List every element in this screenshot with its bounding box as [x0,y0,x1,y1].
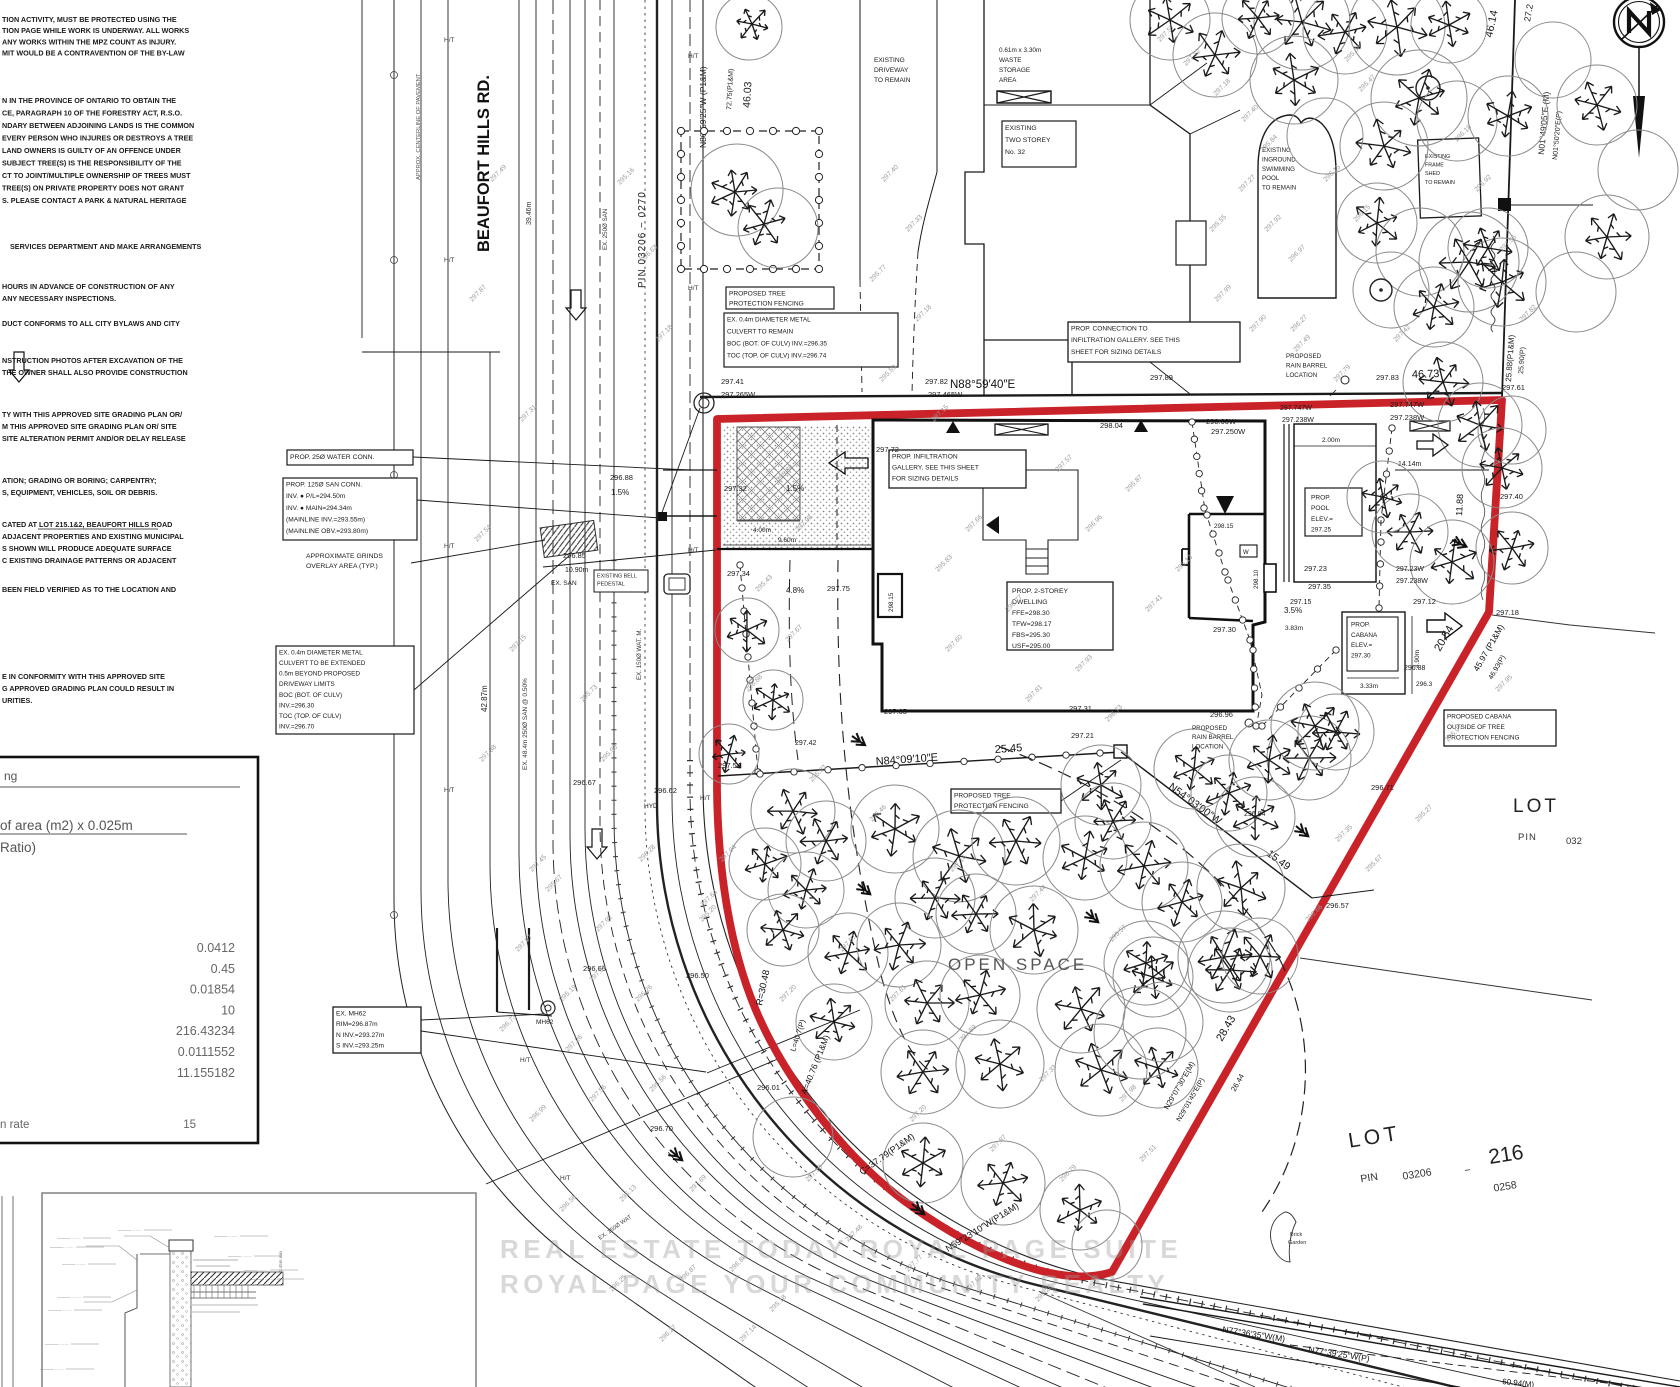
svg-text:APPROX. CENTERLINE OF PAVEMENT: APPROX. CENTERLINE OF PAVEMENT [416,73,422,180]
svg-text:C EXISTING DRAINAGE PATTERNS O: C EXISTING DRAINAGE PATTERNS OR ADJACENT [2,556,177,565]
svg-text:ANY NECESSARY INSPECTIONS.: ANY NECESSARY INSPECTIONS. [2,294,116,303]
svg-text:N INV.=293.27m: N INV.=293.27m [336,1032,385,1039]
svg-text:25.45: 25.45 [994,742,1022,756]
svg-text:EXISTING BELL: EXISTING BELL [597,574,637,580]
svg-text:CABANA: CABANA [1351,632,1378,639]
svg-text:3.5%: 3.5% [1284,606,1302,615]
svg-text:MIT WOULD BE A CONTRAVENTION O: MIT WOULD BE A CONTRAVENTION OF THE BY-L… [2,49,185,58]
svg-text:Brick: Brick [1290,1232,1302,1238]
svg-text:BEEN FIELD VERIFIED AS TO THE: BEEN FIELD VERIFIED AS TO THE LOCATION A… [2,585,176,594]
svg-text:EXISTING: EXISTING [874,57,905,64]
svg-text:PROP.: PROP. [1311,495,1331,502]
svg-text:TOC (TOP. OF CULV): TOC (TOP. OF CULV) [279,713,341,720]
svg-text:RAIN BARREL: RAIN BARREL [1192,734,1234,741]
svg-text:URITIES.: URITIES. [2,696,32,705]
svg-text:N80°59′25″W (P1&M): N80°59′25″W (P1&M) [698,66,708,148]
svg-text:296.85: 296.85 [563,551,586,560]
svg-text:H/T: H/T [560,1175,571,1182]
svg-text:296.01: 296.01 [757,1083,780,1092]
svg-text:H/T: H/T [444,543,455,550]
svg-text:ng: ng [4,769,17,783]
svg-text:297.75: 297.75 [827,584,850,593]
svg-text:297.82: 297.82 [925,377,948,386]
svg-text:PROP. CONNECTION TO: PROP. CONNECTION TO [1071,326,1148,333]
svg-text:EVERY PERSON WHO INJURES OR DE: EVERY PERSON WHO INJURES OR DESTROYS A T… [2,134,193,143]
svg-text:297.25: 297.25 [1311,526,1332,533]
svg-text:FRAME: FRAME [1425,163,1444,169]
svg-text:297.747W: 297.747W [1390,400,1425,409]
svg-text:297.12: 297.12 [1413,597,1436,606]
svg-text:298.04: 298.04 [1100,421,1123,430]
svg-text:DRIVEWAY: DRIVEWAY [874,67,909,74]
svg-text:1.5%: 1.5% [611,488,629,497]
svg-text:LOT: LOT [1513,796,1559,817]
svg-text:BOC (BOT. OF CULV): BOC (BOT. OF CULV) [279,692,342,699]
svg-text:APPROXIMATE GRINDS: APPROXIMATE GRINDS [306,553,383,560]
svg-text:PROP. INFILTRATION: PROP. INFILTRATION [892,454,958,461]
svg-text:296.96: 296.96 [1210,710,1233,719]
svg-text:——— ······: ——— ······ [50,1245,74,1250]
svg-text:297.83: 297.83 [1376,373,1399,382]
svg-text:3.83m: 3.83m [1285,625,1303,632]
svg-text:3.33m: 3.33m [1360,683,1378,690]
svg-text:INGROUND: INGROUND [1262,156,1296,163]
svg-text:——— ······: ——— ······ [40,1367,64,1372]
svg-text:SUBJECT TREE(S) IS THE RESPONS: SUBJECT TREE(S) IS THE RESPONSIBILITY OF… [2,159,182,168]
svg-text:S, EQUIPMENT, VEHICLES, SOIL O: S, EQUIPMENT, VEHICLES, SOIL OR DEBRIS. [2,488,157,497]
svg-text:INV. ● P/L=294.50m: INV. ● P/L=294.50m [286,493,346,500]
svg-text:OPEN SPACE: OPEN SPACE [948,955,1087,974]
svg-text:297.250W: 297.250W [1211,427,1246,436]
svg-text:0.01854: 0.01854 [190,983,235,997]
svg-text:FBS=295.30: FBS=295.30 [1012,632,1050,639]
svg-text:298.10: 298.10 [1253,569,1260,589]
svg-text:PROPOSED CABANA: PROPOSED CABANA [1447,713,1512,720]
svg-text:297.54: 297.54 [718,761,741,770]
svg-text:PEDESTAL: PEDESTAL [597,582,625,588]
svg-text:AREA: AREA [999,77,1017,84]
svg-text:H/T: H/T [444,257,455,264]
svg-text:297.238W: 297.238W [1390,413,1425,422]
svg-text:297.15: 297.15 [1290,599,1312,606]
svg-text:296.3: 296.3 [1416,681,1433,688]
svg-text:CE, PARAGRAPH 10 OF THE FOREST: CE, PARAGRAPH 10 OF THE FORESTRY ACT, R.… [2,109,182,118]
svg-text:296.62: 296.62 [654,786,677,795]
svg-text:TION PAGE WHILE WORK IS UNDERW: TION PAGE WHILE WORK IS UNDERWAY. ALL WO… [2,26,189,35]
svg-text:297.238W: 297.238W [1282,417,1314,424]
svg-text:——— ······: ——— ······ [244,1268,268,1273]
svg-text:39.46m: 39.46m [526,201,533,225]
svg-text:CULVERT TO REMAIN: CULVERT TO REMAIN [727,328,794,335]
svg-text:S INV.=293.25m: S INV.=293.25m [336,1042,384,1049]
svg-text:(MAINLINE INV.=293.55m): (MAINLINE INV.=293.55m) [286,516,365,523]
svg-text:LOCATION: LOCATION [1286,372,1317,379]
svg-text:296.71: 296.71 [1371,783,1394,792]
svg-text:ANY WORKS WITHIN THE MPZ COUNT: ANY WORKS WITHIN THE MPZ COUNT AS INJURY… [2,37,176,46]
svg-text:EX. MH62: EX. MH62 [336,1011,366,1018]
svg-text:297.21: 297.21 [1071,731,1094,740]
svg-text:——— ······: ——— ······ [45,1342,69,1347]
svg-text:298.15: 298.15 [1214,523,1234,530]
svg-text:PROP. 125Ø SAN CONN.: PROP. 125Ø SAN CONN. [286,482,362,489]
svg-text:15: 15 [183,1119,196,1131]
svg-text:PIN: PIN [1518,832,1537,843]
svg-text:of area (m2) x 0.025m: of area (m2) x 0.025m [0,818,133,833]
svg-text:THE OWNER SHALL ALSO PROVIDE C: THE OWNER SHALL ALSO PROVIDE CONSTRUCTIO… [2,368,188,377]
svg-text:297.238W: 297.238W [1396,578,1428,585]
svg-text:TO REMAIN: TO REMAIN [1425,180,1455,186]
svg-text:297.34: 297.34 [727,569,750,578]
svg-text:(MAINLINE OBV.=293.80m): (MAINLINE OBV.=293.80m) [286,528,368,535]
svg-text:STORAGE: STORAGE [999,67,1030,74]
svg-text:296.57: 296.57 [1326,901,1349,910]
svg-text:LAND OWNERS IS GUILTY OF AN OF: LAND OWNERS IS GUILTY OF AN OFFENCE UNDE… [2,146,182,155]
svg-text:297.40: 297.40 [1500,492,1523,501]
svg-text:297.65: 297.65 [884,707,907,716]
svg-text:297.41: 297.41 [721,377,744,386]
svg-text:297.61: 297.61 [1502,383,1525,392]
svg-text:OVERLAY AREA (TYP.): OVERLAY AREA (TYP.) [306,563,378,570]
svg-text:DRIVEWAY LIMITS: DRIVEWAY LIMITS [279,681,335,688]
svg-text:0.0412: 0.0412 [197,941,235,955]
svg-text:296.84: 296.84 [1244,811,1266,818]
svg-text:Ratio): Ratio) [0,840,36,855]
svg-text:H/T: H/T [688,53,699,60]
svg-text:——— ······: ——— ······ [214,1234,238,1239]
svg-text:297.42: 297.42 [795,740,817,747]
svg-text:298.15: 298.15 [888,592,895,612]
svg-text:SITE ALTERATION PERMIT AND/OR: SITE ALTERATION PERMIT AND/OR DELAY RELE… [2,434,186,443]
svg-text:RAIN BARREL: RAIN BARREL [1286,362,1328,369]
svg-text:H/T: H/T [444,787,455,794]
svg-text:296.70: 296.70 [650,1124,673,1133]
svg-text:216.43234: 216.43234 [176,1024,235,1038]
svg-text:M THIS APPROVED SITE GRADING P: M THIS APPROVED SITE GRADING PLAN OR/ SI… [2,422,177,431]
svg-text:S SHOWN WILL PRODUCE ADEQUATE: S SHOWN WILL PRODUCE ADEQUATE SURFACE [2,544,172,553]
svg-text:ADJACENT PROPERTIES AND EXISTI: ADJACENT PROPERTIES AND EXISTING MUNICIP… [2,532,184,541]
svg-text:297.23: 297.23 [1304,564,1327,573]
svg-text:SHEET FOR SIZING DETAILS: SHEET FOR SIZING DETAILS [1071,349,1162,356]
svg-text:——— ······: ——— ······ [62,1262,86,1267]
svg-text:ELEV.=: ELEV.= [1311,516,1333,523]
svg-text:297.89: 297.89 [1150,373,1173,382]
svg-text:297.747W: 297.747W [1280,405,1312,412]
svg-text:RIM=296.87m: RIM=296.87m [336,1021,378,1028]
svg-text:ROYAL PAGE YOUR COMMUNITY REAL: ROYAL PAGE YOUR COMMUNITY REALTY [500,1269,1169,1299]
svg-text:H/T: H/T [688,285,699,292]
svg-text:S. PLEASE CONTACT A PARK & NAT: S. PLEASE CONTACT A PARK & NATURAL HERIT… [2,196,187,205]
svg-text:46.73: 46.73 [1412,368,1440,381]
svg-text:297.30: 297.30 [1213,625,1236,634]
svg-text:296.50: 296.50 [686,971,709,980]
svg-text:297.31: 297.31 [1069,704,1092,713]
svg-text:G APPROVED GRADING PLAN COULD: G APPROVED GRADING PLAN COULD RESULT IN [2,684,174,693]
svg-text:INV. ● MAIN=294.34m: INV. ● MAIN=294.34m [286,505,352,512]
svg-text:11.88: 11.88 [1454,494,1465,516]
svg-text:CULVERT TO BE EXTENDED: CULVERT TO BE EXTENDED [279,660,366,667]
svg-text:EX. 150Ø WAT. M.: EX. 150Ø WAT. M. [636,628,643,680]
svg-text:USF=295.00: USF=295.00 [1012,643,1051,650]
svg-text:PROP. 2-STOREY: PROP. 2-STOREY [1012,588,1068,595]
svg-text:n rate: n rate [0,1119,29,1131]
svg-text:42.87m: 42.87m [480,685,489,712]
svg-text:CATED AT LOT 215.1&2, BEAUFORT: CATED AT LOT 215.1&2, BEAUFORT HILLS ROA… [2,520,172,529]
svg-text:TWO STOREY: TWO STOREY [1005,137,1051,144]
svg-text:032: 032 [1566,836,1582,847]
svg-text:PROP. 25Ø WATER CONN.: PROP. 25Ø WATER CONN. [290,454,375,461]
svg-text:0.61m x 3.30m: 0.61m x 3.30m [999,47,1041,54]
svg-text:PROPOSED TREE: PROPOSED TREE [729,291,786,298]
svg-text:H/T: H/T [700,795,711,802]
svg-text:296.88: 296.88 [1404,665,1426,672]
svg-text:0.5m BEYOND PROPOSED: 0.5m BEYOND PROPOSED [279,671,360,678]
svg-text:4.00m: 4.00m [753,527,771,534]
svg-text:10.90m: 10.90m [565,567,589,574]
svg-text:——— ······: ——— ······ [57,1295,81,1300]
svg-text:ELEV.=: ELEV.= [1351,642,1373,649]
svg-text:TO REMAIN: TO REMAIN [874,77,911,84]
svg-text:297.465W: 297.465W [928,390,963,399]
svg-text:PIN 03206 − 0270: PIN 03206 − 0270 [637,191,648,288]
svg-text:H/T: H/T [520,1057,531,1064]
svg-text:PROTECTION FENCING: PROTECTION FENCING [729,301,804,308]
svg-text:CT TO JOINT/MULTIPLE OWNERSHIP: CT TO JOINT/MULTIPLE OWNERSHIP OF TREES … [2,171,191,180]
svg-text:296.88: 296.88 [610,473,633,482]
svg-text:——— ······: ——— ······ [228,1254,252,1259]
svg-text:TFW=298.17: TFW=298.17 [1012,621,1052,628]
svg-text:2.00m: 2.00m [1322,437,1340,444]
svg-text:TOC (TOP. OF CULV) INV.=296.74: TOC (TOP. OF CULV) INV.=296.74 [727,352,827,359]
svg-text:TREE(S) ON PRIVATE PROPERTY DO: TREE(S) ON PRIVATE PROPERTY DOES NOT GRA… [2,184,185,193]
svg-text:H/T: H/T [444,37,455,44]
svg-text:0.45m min: 0.45m min [278,1250,283,1272]
svg-text:——— ······: ——— ······ [57,1236,81,1241]
svg-text:TO REMAIN: TO REMAIN [1262,185,1296,192]
svg-text:TY WITH THIS APPROVED SITE GRA: TY WITH THIS APPROVED SITE GRADING PLAN … [2,410,182,419]
svg-text:BOC (BOT. OF CULV) INV.=296.35: BOC (BOT. OF CULV) INV.=296.35 [727,340,827,347]
svg-text:E IN CONFORMITY WITH THIS APPR: E IN CONFORMITY WITH THIS APPROVED SITE [2,672,165,681]
svg-text:W: W [1243,550,1249,556]
svg-text:NSTRUCTION PHOTOS AFTER EXCAVA: NSTRUCTION PHOTOS AFTER EXCAVATION OF TH… [2,356,183,365]
svg-text:POOL: POOL [1262,175,1280,182]
svg-text:N IN THE PROVINCE OF ONTARIO T: N IN THE PROVINCE OF ONTARIO TO OBTAIN T… [2,96,176,105]
svg-text:POOL: POOL [1311,505,1330,512]
svg-text:MH62: MH62 [536,1019,554,1026]
svg-text:GALLERY. SEE THIS SHEET: GALLERY. SEE THIS SHEET [892,465,979,472]
svg-text:INFILTRATION GALLERY. SEE THIS: INFILTRATION GALLERY. SEE THIS [1071,337,1181,344]
svg-text:EX. SAN: EX. SAN [551,580,577,587]
svg-text:SHED: SHED [1425,171,1440,177]
svg-text:No. 32: No. 32 [1005,149,1025,156]
svg-text:FOR SIZING DETAILS: FOR SIZING DETAILS [892,476,959,483]
svg-text:297.23W: 297.23W [1396,566,1424,573]
svg-text:PROPOSED: PROPOSED [1192,725,1228,732]
svg-text:298.00W: 298.00W [1206,417,1237,426]
svg-text:DUCT CONFORMS TO ALL CITY BYLA: DUCT CONFORMS TO ALL CITY BYLAWS AND CIT… [2,319,180,328]
svg-text:297.35: 297.35 [1308,582,1331,591]
svg-text:1.5%: 1.5% [786,484,804,493]
svg-text:PROTECTION FENCING: PROTECTION FENCING [1447,735,1519,742]
svg-text:296.67: 296.67 [573,778,596,787]
svg-text:HYD: HYD [644,803,658,810]
svg-text:ATION; GRADING OR BORING; CARP: ATION; GRADING OR BORING; CARPENTRY; [2,476,156,485]
svg-text:EX. 250Ø SAN: EX. 250Ø SAN [602,209,609,250]
svg-text:46.03: 46.03 [741,81,754,108]
svg-text:SERVICES DEPARTMENT AND MAKE A: SERVICES DEPARTMENT AND MAKE ARRANGEMENT… [10,242,201,251]
svg-text:INV.=296.70: INV.=296.70 [279,724,315,731]
svg-text:FFE=298.30: FFE=298.30 [1012,610,1050,617]
svg-text:4.8%: 4.8% [786,586,804,595]
svg-text:——— ······: ——— ······ [250,1277,274,1282]
svg-text:297.30: 297.30 [1351,653,1371,660]
svg-text:INV.=296.30: INV.=296.30 [279,702,315,709]
svg-text:EX. 0.4m DIAMETER METAL: EX. 0.4m DIAMETER METAL [279,649,363,656]
svg-text:9.60m: 9.60m [778,537,796,544]
svg-text:297.72: 297.72 [876,445,899,454]
svg-text:EXISTING: EXISTING [1005,125,1037,132]
svg-text:297.32: 297.32 [724,484,747,493]
svg-text:EX. 48.4m 250Ø SAN @ 0.50%: EX. 48.4m 250Ø SAN @ 0.50% [522,678,529,770]
svg-text:HOURS IN ADVANCE OF CONSTRUCTI: HOURS IN ADVANCE OF CONSTRUCTION OF ANY [2,282,175,291]
svg-text:PROP.: PROP. [1351,621,1370,628]
svg-text:14.14m: 14.14m [1398,461,1422,468]
svg-text:EX. 0.4m DIAMETER METAL: EX. 0.4m DIAMETER METAL [727,316,811,323]
svg-text:REAL ESTATE TODAY ROYAL PAGE S: REAL ESTATE TODAY ROYAL PAGE SUITE [500,1234,1182,1264]
svg-text:10: 10 [221,1003,235,1017]
svg-text:297.265W: 297.265W [721,390,756,399]
svg-text:0.45: 0.45 [211,962,235,976]
svg-text:WASTE: WASTE [999,57,1022,64]
svg-text:Garden: Garden [1288,1240,1306,1246]
svg-text:11.155182: 11.155182 [177,1066,235,1080]
svg-text:——— ······: ——— ······ [48,1308,72,1313]
svg-text:BEAUFORT HILLS RD.: BEAUFORT HILLS RD. [475,75,493,252]
svg-text:NDARY BETWEEN ADJOINING LANDS: NDARY BETWEEN ADJOINING LANDS IS THE COM… [2,121,194,130]
svg-text:——— ······: ——— ······ [118,1228,142,1233]
svg-text:TION ACTIVITY, MUST BE PROTECT: TION ACTIVITY, MUST BE PROTECTED USING T… [2,15,177,24]
svg-text:PROPOSED: PROPOSED [1286,353,1322,360]
svg-text:0.0111552: 0.0111552 [178,1045,235,1059]
svg-text:SWIMMING: SWIMMING [1262,166,1295,173]
